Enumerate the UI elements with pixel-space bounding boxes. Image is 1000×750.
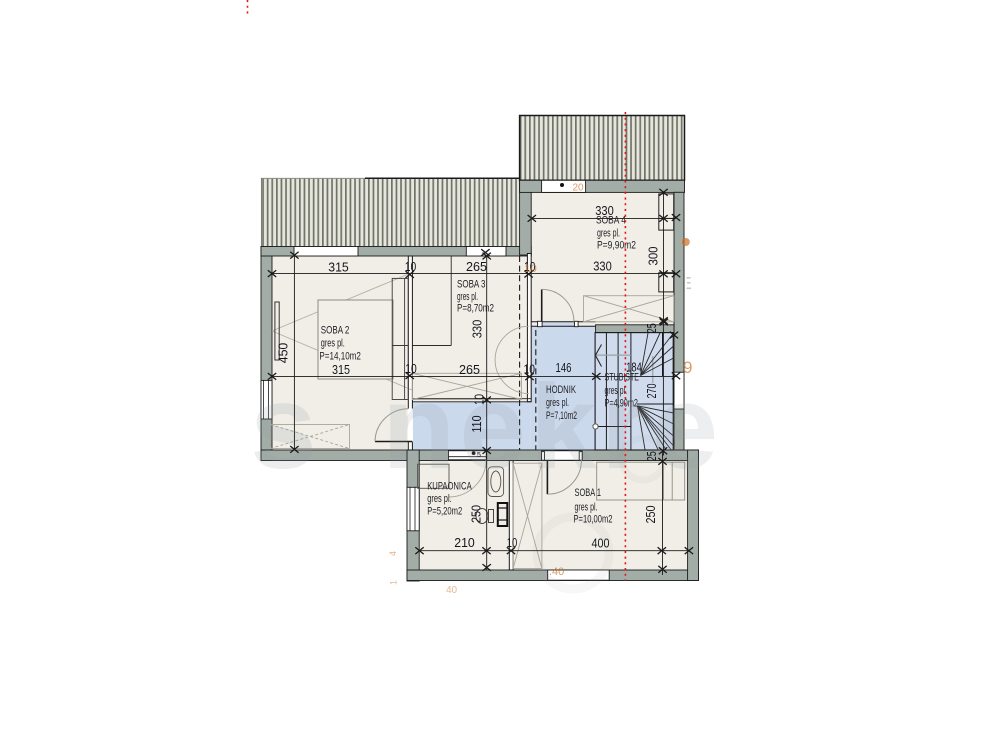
svg-text:10: 10: [524, 362, 536, 376]
svg-text:gres pl.: gres pl.: [575, 502, 598, 514]
svg-text:10: 10: [405, 260, 417, 274]
svg-text:20: 20: [573, 183, 585, 194]
svg-text:25: 25: [645, 451, 659, 461]
svg-text:25: 25: [645, 323, 659, 333]
svg-text:P=14,10m2: P=14,10m2: [319, 351, 361, 363]
svg-text:gres pl.: gres pl.: [546, 397, 569, 409]
svg-text:P=8,70m2: P=8,70m2: [457, 303, 494, 315]
svg-text:450: 450: [277, 343, 291, 364]
svg-text:P=4,90m2: P=4,90m2: [605, 398, 639, 410]
svg-text:gres pl.: gres pl.: [597, 228, 620, 240]
svg-text:HODNIK: HODNIK: [546, 384, 576, 396]
svg-text:210: 210: [454, 536, 475, 550]
svg-text:250: 250: [644, 505, 658, 523]
svg-text:265: 265: [459, 363, 480, 377]
svg-text:265: 265: [466, 260, 487, 274]
svg-text:SOBA 1: SOBA 1: [575, 487, 602, 499]
svg-text:300: 300: [647, 246, 661, 265]
svg-text:P=10,00m2: P=10,00m2: [574, 514, 613, 526]
svg-text:110: 110: [470, 415, 484, 432]
svg-text:P=7,10m2: P=7,10m2: [546, 410, 577, 422]
svg-text:10: 10: [405, 362, 417, 376]
svg-text:P=5,20m2: P=5,20m2: [427, 505, 462, 517]
svg-text:10: 10: [507, 536, 518, 550]
svg-text:5: 5: [477, 452, 481, 459]
svg-text:9: 9: [683, 358, 692, 377]
svg-text:SOBA 4: SOBA 4: [596, 215, 626, 227]
svg-text:315: 315: [332, 363, 350, 377]
svg-text:330: 330: [593, 259, 612, 273]
svg-text:40: 40: [446, 585, 458, 596]
svg-text:270: 270: [645, 383, 659, 398]
svg-text:330: 330: [471, 320, 485, 339]
svg-text:SOBA 2: SOBA 2: [321, 325, 350, 337]
svg-text:315: 315: [328, 261, 349, 275]
svg-text:gres pl.: gres pl.: [427, 493, 452, 505]
svg-text:STUBIŠTE: STUBIŠTE: [605, 371, 640, 384]
svg-text:SOBA 3: SOBA 3: [457, 279, 486, 291]
svg-text:10: 10: [473, 394, 487, 405]
svg-text:400: 400: [592, 537, 610, 551]
svg-text:146: 146: [556, 361, 572, 375]
svg-text:4: 4: [388, 551, 398, 556]
svg-text:gres pl.: gres pl.: [605, 385, 628, 397]
svg-text:1: 1: [389, 580, 399, 585]
svg-text:gres pl.: gres pl.: [457, 291, 478, 303]
svg-text:250: 250: [470, 505, 484, 523]
svg-text:.40: .40: [549, 566, 564, 578]
svg-text:P=9,90m2: P=9,90m2: [597, 240, 636, 252]
svg-text:gres pl.: gres pl.: [321, 338, 345, 350]
svg-text:KUPAONICA: KUPAONICA: [427, 480, 472, 492]
svg-text:10: 10: [525, 263, 537, 275]
